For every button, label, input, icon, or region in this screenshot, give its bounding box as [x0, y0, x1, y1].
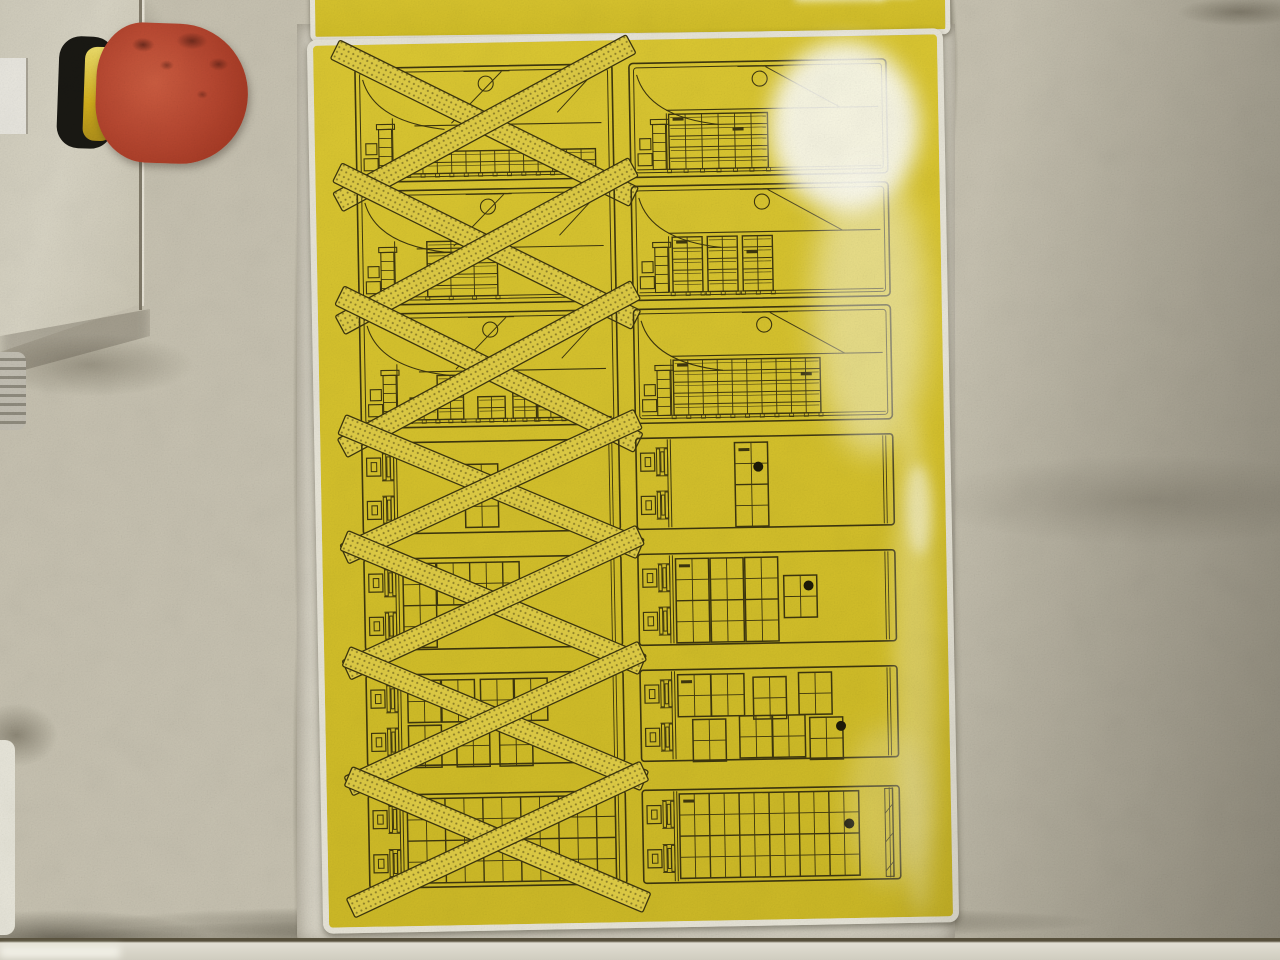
- diagram-row6-correct: [638, 664, 900, 763]
- tray-group: [678, 674, 712, 717]
- cable-gland: [0, 352, 26, 430]
- diagram-row7-incorrect: [367, 789, 629, 890]
- tray-stack: [427, 241, 475, 253]
- sticker-plate: [297, 24, 955, 945]
- top-view-diagram: [364, 669, 626, 768]
- side-label: [0, 58, 28, 134]
- side-view-diagram: [358, 308, 620, 430]
- tray-group: [753, 677, 787, 720]
- panel-seam-highlight: [142, 0, 144, 306]
- latch-icon: [369, 569, 397, 597]
- estop-dirt-speckle: [94, 21, 251, 166]
- tray-group: [441, 679, 475, 722]
- loader-unit-icon: [637, 119, 669, 170]
- glare-reflection: [846, 725, 929, 886]
- latch-icon: [369, 612, 397, 640]
- emergency-stop-button: [0, 0, 263, 184]
- tray-group: [480, 679, 514, 722]
- sticker-row-2: [356, 180, 930, 307]
- side-view-diagram: [356, 185, 618, 307]
- vent-circle-icon: [757, 317, 772, 332]
- loader-unit-icon: [642, 365, 674, 416]
- tray-group: [711, 674, 745, 717]
- latch-icon: [371, 685, 399, 713]
- tray-dash-marker: [746, 250, 757, 253]
- tray-group: [456, 724, 490, 767]
- diagram-row5-correct: [636, 548, 898, 647]
- top-view-diagram: [636, 548, 898, 647]
- latch-icon: [643, 564, 671, 592]
- tray-dash-marker: [676, 240, 687, 243]
- tray-group: [693, 719, 727, 762]
- tray-stack: [406, 149, 598, 178]
- vent-circle-icon: [478, 76, 493, 91]
- side-view-diagram: [632, 303, 894, 425]
- loading-instruction-sticker: [307, 28, 959, 934]
- tray-stack: [511, 385, 539, 422]
- panel-seam: [139, 0, 142, 310]
- vent-circle-icon: [480, 199, 495, 214]
- latch-icon: [366, 453, 394, 481]
- loader-unit-icon: [363, 124, 395, 175]
- latch-icon: [371, 728, 399, 756]
- tray-dash-marker: [673, 118, 684, 121]
- latch-icon: [647, 800, 675, 828]
- top-view-diagram: [641, 784, 903, 885]
- glare-reflection: [890, 415, 941, 916]
- vent-circle-icon: [483, 322, 498, 337]
- tray-dash-marker: [677, 363, 688, 366]
- glare-reflection: [768, 40, 921, 213]
- tray-group: [679, 791, 860, 879]
- tray-dash-marker: [733, 127, 744, 130]
- estop-red-mushroom-head: [94, 21, 251, 166]
- tray-group: [798, 672, 832, 715]
- tray-group: [675, 558, 710, 643]
- prohibition-cross-icon: [335, 281, 644, 458]
- diagram-row6-incorrect: [364, 669, 626, 768]
- tray-group: [437, 562, 520, 606]
- diagram-row3-correct: [632, 303, 894, 425]
- tray-group: [772, 715, 806, 758]
- bottom-strip-glint: [0, 946, 120, 958]
- top-view-diagram: [360, 437, 622, 536]
- tray-dash-marker: [683, 799, 694, 802]
- sticker-row-1: [353, 57, 927, 184]
- latch-icon: [373, 805, 401, 833]
- tray-group: [810, 717, 844, 760]
- position-dot-marker: [753, 462, 763, 472]
- tray-stack: [670, 237, 705, 296]
- sticker-row-3: [358, 303, 932, 430]
- vent-circle-icon: [754, 194, 769, 209]
- position-dot-marker: [803, 580, 813, 590]
- tray-group: [784, 575, 818, 618]
- tray-stack: [476, 396, 508, 422]
- latch-icon: [645, 680, 673, 708]
- sticker-row-7: [367, 783, 941, 889]
- prohibition-cross-icon: [338, 409, 645, 564]
- tray-group: [710, 558, 745, 643]
- tray-group: [465, 464, 499, 528]
- loader-unit-icon: [640, 242, 672, 293]
- side-view-diagram: [353, 62, 615, 184]
- latch-icon: [641, 491, 669, 519]
- diagram-row2-incorrect: [356, 185, 618, 307]
- loader-unit-icon: [366, 247, 398, 298]
- latch-icon: [645, 723, 673, 751]
- glare-reflection: [810, 165, 930, 457]
- sticker-row-6: [364, 663, 938, 767]
- position-dot-marker: [844, 818, 854, 828]
- tray-group: [407, 795, 617, 883]
- estop-yellow-collar: [82, 46, 115, 141]
- side-view-diagram: [627, 57, 889, 179]
- tray-dash-marker: [679, 564, 690, 567]
- prohibition-cross-icon: [344, 761, 651, 918]
- tray-stack: [705, 236, 740, 295]
- right-shadow-gradient: [0, 0, 1280, 960]
- vent-circle-icon: [752, 71, 767, 86]
- panel-edge-reflection: [0, 740, 15, 935]
- latch-icon: [648, 844, 676, 872]
- top-view-diagram: [362, 553, 624, 652]
- latch-icon: [374, 849, 402, 877]
- tray-group: [739, 715, 773, 758]
- diagram-row4-incorrect: [360, 437, 622, 536]
- tray-group: [499, 724, 533, 767]
- top-view-diagram: [634, 432, 896, 531]
- sticker-row-4: [360, 432, 934, 536]
- diagram-row5-incorrect: [362, 553, 624, 652]
- glare-reflection: [906, 465, 933, 555]
- bottom-metal-strip: [0, 938, 1280, 960]
- latch-icon: [367, 496, 395, 524]
- control-box-shadow: [0, 300, 150, 390]
- diagram-row1-correct: [627, 57, 889, 179]
- tray-dash-marker: [801, 372, 812, 375]
- tray-group: [403, 563, 438, 648]
- tray-stack: [435, 375, 466, 423]
- top-view-diagram: [638, 664, 900, 763]
- side-view-diagram: [630, 180, 892, 302]
- prohibition-cross-icon: [340, 525, 647, 680]
- latch-icon: [640, 448, 668, 476]
- tray-group: [408, 725, 442, 768]
- latch-icon: [643, 607, 671, 635]
- diagram-row1-incorrect: [353, 62, 615, 184]
- tray-group: [514, 678, 548, 721]
- end-strip: [885, 788, 895, 876]
- prohibition-cross-icon: [332, 158, 641, 335]
- sticker-scuff: [795, 0, 885, 1]
- prohibition-cross-icon: [342, 641, 649, 796]
- tray-stack: [408, 398, 440, 424]
- tray-group: [745, 557, 780, 642]
- tray-group: [734, 442, 769, 527]
- tray-group: [408, 680, 442, 723]
- grime-stains: [0, 0, 1280, 960]
- sticker-row-5: [362, 547, 936, 651]
- loader-unit-icon: [368, 370, 400, 421]
- top-sticker-partial: [310, 0, 951, 42]
- tray-stack: [536, 395, 566, 421]
- control-box: [0, 0, 145, 352]
- tray-stack: [667, 112, 771, 172]
- estop-base-ring: [56, 36, 116, 150]
- top-view-diagram: [367, 789, 629, 890]
- machine-panel-photo: [0, 0, 1280, 960]
- tray-dash-marker: [738, 448, 749, 451]
- diagram-row2-correct: [630, 180, 892, 302]
- position-dot-marker: [836, 721, 846, 731]
- tray-stack: [671, 358, 823, 419]
- dirt-noise-texture: [0, 0, 1280, 960]
- tray-stack: [425, 251, 500, 300]
- prohibition-cross-icon: [330, 35, 639, 212]
- diagram-row3-incorrect: [358, 308, 620, 430]
- diagram-row7-correct: [641, 784, 903, 885]
- tray-dash-marker: [681, 680, 692, 683]
- tray-stack: [740, 235, 775, 294]
- sticker-rows: [313, 35, 941, 916]
- diagram-row4-correct: [634, 432, 896, 531]
